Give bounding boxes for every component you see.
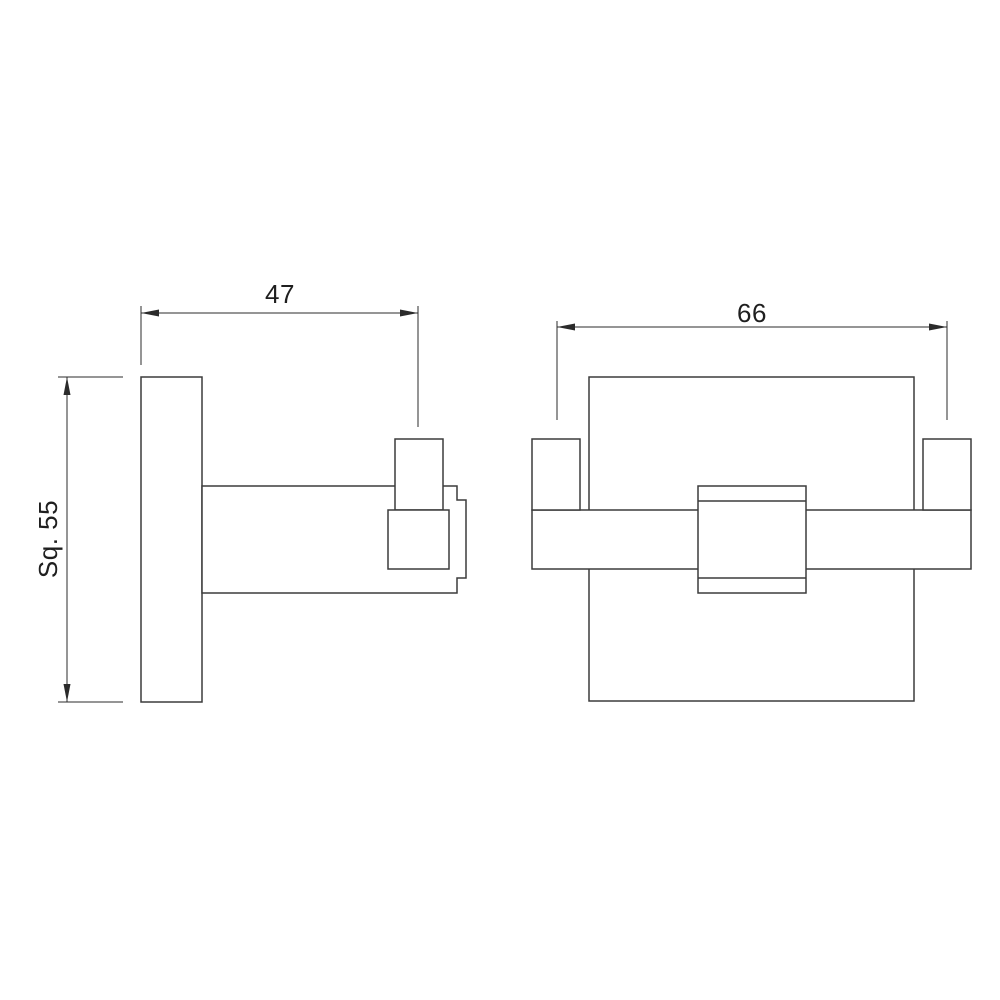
side-wall-plate [141, 377, 202, 702]
front-view [532, 377, 971, 701]
dimension-faceplate-square: Sq. 55 [33, 377, 123, 702]
side-bar-end [388, 510, 449, 569]
pitch-dimension-label: 66 [737, 298, 767, 328]
dim47-arrow-left-icon [141, 310, 159, 317]
front-right-post [923, 439, 971, 510]
front-center-boss [698, 486, 806, 593]
square-dimension-label: Sq. 55 [33, 500, 63, 578]
dim66-arrow-right-icon [929, 324, 947, 331]
drawing-canvas: 47 66 Sq. 55 [0, 0, 1000, 1000]
projection-dimension-label: 47 [265, 279, 295, 309]
dim55-arrow-down-icon [64, 684, 71, 702]
dim66-arrow-left-icon [557, 324, 575, 331]
side-hook-post [395, 439, 443, 510]
dim55-arrow-up-icon [64, 377, 71, 395]
front-left-post [532, 439, 580, 510]
dim47-arrow-right-icon [400, 310, 418, 317]
technical-drawing: 47 66 Sq. 55 [0, 0, 1000, 1000]
side-view [141, 377, 466, 702]
